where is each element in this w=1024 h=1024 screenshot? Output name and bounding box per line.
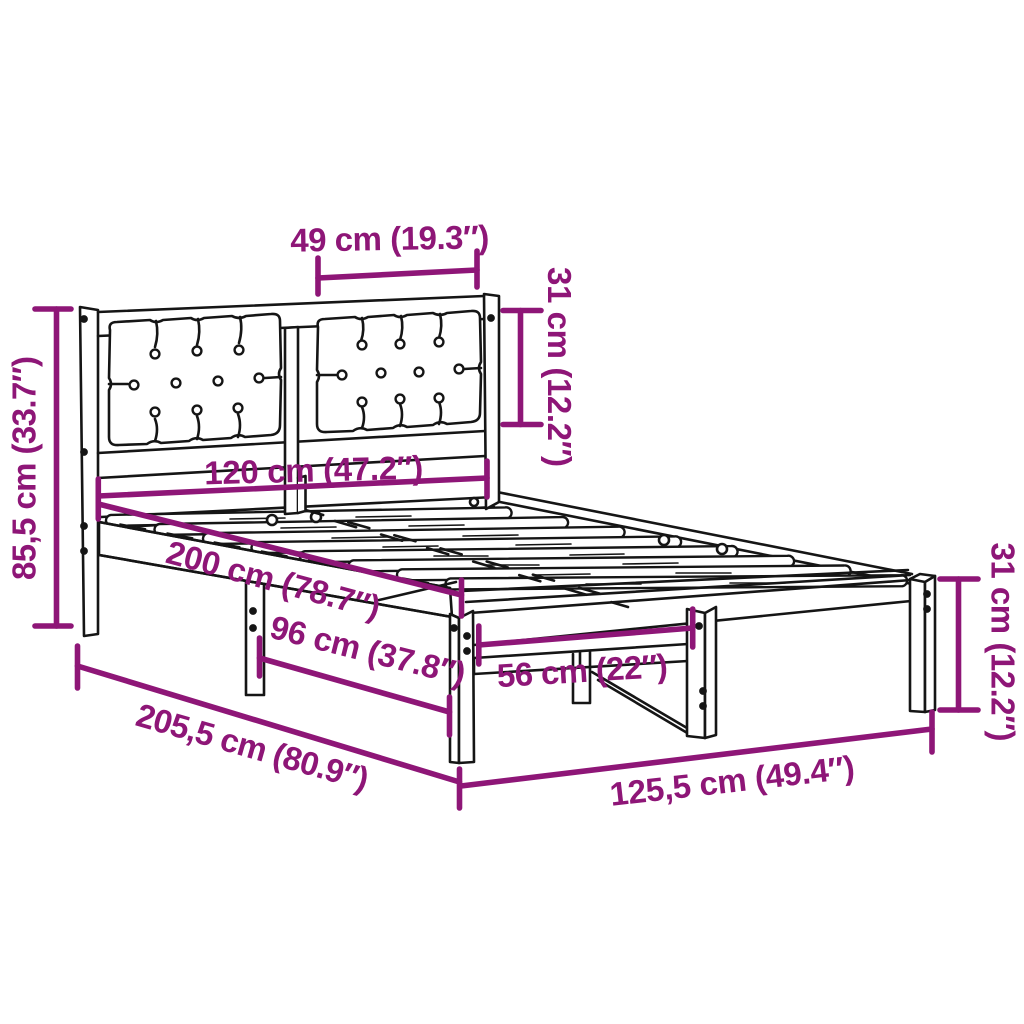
svg-text:49 cm (19.3″): 49 cm (19.3″) (290, 218, 490, 258)
svg-text:31 cm (12.2″): 31 cm (12.2″) (985, 543, 1022, 742)
svg-text:120 cm (47.2″): 120 cm (47.2″) (204, 449, 424, 492)
svg-text:31 cm (12.2″): 31 cm (12.2″) (541, 267, 578, 467)
svg-text:85,5 cm (33.7″): 85,5 cm (33.7″) (6, 356, 43, 580)
